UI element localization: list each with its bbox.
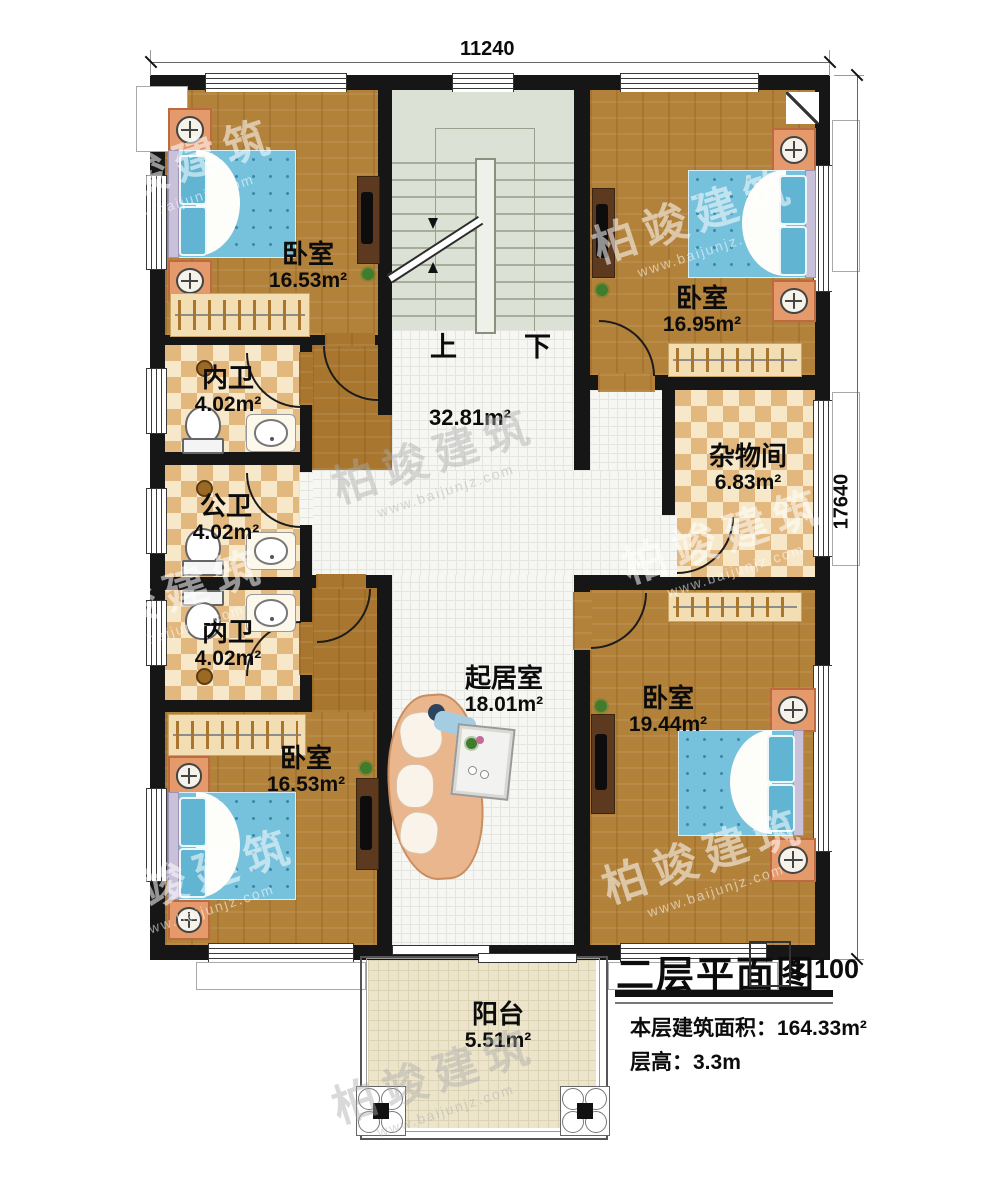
stair-up-label: 上: [430, 325, 457, 364]
nightstand: [168, 900, 210, 940]
hall-floor-band: [312, 470, 662, 575]
sliding-door-panel: [392, 945, 490, 955]
door-gap-bath-top: [299, 352, 313, 405]
bed-pillow: [179, 848, 207, 898]
cup-icon: [480, 770, 489, 779]
room-label-bedroom-bl: 卧室16.53m²: [267, 744, 345, 797]
bed-pillow: [767, 784, 795, 832]
toilet-tank: [182, 438, 224, 454]
flower-icon: [476, 736, 484, 744]
lamp-icon: [778, 696, 807, 724]
nightstand: [772, 280, 816, 322]
title-rule-thick: [615, 990, 833, 997]
sill-right-top: [832, 120, 860, 272]
floor-plan-canvas: 上 下: [0, 0, 1000, 1188]
lamp-icon: [780, 288, 808, 315]
plant-icon: [362, 268, 374, 280]
door-gap-bedroom-br: [573, 592, 592, 650]
plant-icon: [596, 284, 608, 296]
wardrobe: [170, 293, 310, 337]
window-top-bedroom-tr: [620, 73, 759, 92]
hall-floor-ext: [590, 390, 662, 470]
balcony-column: [356, 1086, 406, 1136]
floor-height-text: 层高：3.3m: [630, 1046, 741, 1076]
window-top-bedroom-tl: [205, 73, 347, 92]
stair-rail: [475, 158, 496, 334]
corridor-top-floor2: [312, 415, 392, 470]
cup-icon: [468, 766, 477, 775]
plant-icon: [360, 762, 372, 774]
lamp-icon: [778, 846, 807, 874]
lamp-icon: [176, 763, 203, 788]
window-top-stair: [452, 73, 514, 92]
room-label-bath-bot: 内卫4.02m²: [195, 618, 262, 671]
sliding-door-panel: [478, 953, 577, 963]
lamp-icon: [176, 116, 204, 144]
dimension-right-value: 17640: [831, 472, 854, 532]
nightstand: [772, 128, 816, 172]
sink-basin-icon: [254, 419, 289, 446]
dimension-line-top: [150, 62, 830, 63]
bed-pillow: [767, 735, 795, 783]
window-left-bath-top: [146, 368, 167, 434]
nightstand: [168, 756, 210, 796]
plant-icon: [595, 700, 607, 712]
door-gap-bl-corridor: [316, 574, 366, 589]
window-left-bedroom-tl: [146, 175, 167, 270]
balcony-column: [560, 1086, 610, 1136]
toilet-tank: [182, 560, 224, 576]
room-label-bedroom-tr: 卧室16.95m²: [663, 284, 741, 337]
door-gap-bath-bot: [299, 622, 313, 675]
lamp-icon: [176, 907, 203, 932]
sill-bottom-left: [196, 962, 366, 990]
nightstand: [770, 688, 816, 732]
bed-pillow: [779, 226, 807, 276]
door-gap-storage: [660, 515, 677, 577]
stair-down-label: 下: [524, 325, 551, 364]
sink: [246, 414, 296, 452]
bed-headboard: [168, 150, 179, 258]
fold-corner-icon: [786, 92, 819, 124]
floor-area-text: 本层建筑面积：164.33m²: [630, 1012, 867, 1042]
coffee-table: [450, 723, 515, 801]
room-label-bath-mid: 公卫4.02m²: [193, 492, 260, 545]
bed-headboard: [168, 792, 179, 900]
room-label-hall: 32.81m²: [429, 406, 511, 431]
plan-scale: 1:100: [790, 954, 859, 985]
wardrobe: [668, 343, 802, 377]
monitor-icon: [361, 192, 373, 244]
stair-arrow-down-icon: [428, 218, 438, 229]
window-right-storage: [813, 400, 832, 557]
window-left-bath-bot: [146, 600, 167, 666]
dimension-top-value: 11240: [460, 38, 515, 61]
room-label-balcony: 阳台5.51m²: [465, 1000, 532, 1053]
lamp-icon: [780, 136, 808, 164]
bed-pillow: [179, 206, 207, 256]
room-label-living: 起居室18.01m²: [465, 664, 543, 717]
monitor-icon: [360, 796, 372, 850]
room-label-bath-top: 内卫4.02m²: [195, 364, 262, 417]
room-label-bedroom-br: 卧室19.44m²: [629, 684, 707, 737]
bed-pillow: [179, 797, 207, 847]
title-rule-thin: [615, 1002, 833, 1004]
window-bottom-bedroom-bl: [208, 943, 354, 962]
dimension-line-right: [857, 75, 858, 960]
bed-pillow: [179, 155, 207, 205]
room-label-storage: 杂物间6.83m²: [709, 442, 787, 495]
window-left-bath-mid: [146, 488, 167, 554]
monitor-icon: [596, 204, 608, 258]
sofa-cushion: [396, 764, 434, 808]
door-gap-bedroom-tl: [325, 333, 375, 346]
door-gap-bath-mid: [299, 472, 313, 525]
stair-arrow-up-icon: [428, 262, 438, 273]
wardrobe: [668, 592, 802, 622]
nightstand: [770, 838, 816, 882]
bed-pillow: [779, 175, 807, 225]
window-left-bedroom-bl: [146, 788, 167, 882]
title-highlight-box: [749, 941, 791, 987]
monitor-icon: [595, 734, 607, 790]
lamp-icon: [176, 268, 204, 295]
room-label-bedroom-tl: 卧室16.53m²: [269, 240, 347, 293]
nightstand: [168, 108, 212, 152]
